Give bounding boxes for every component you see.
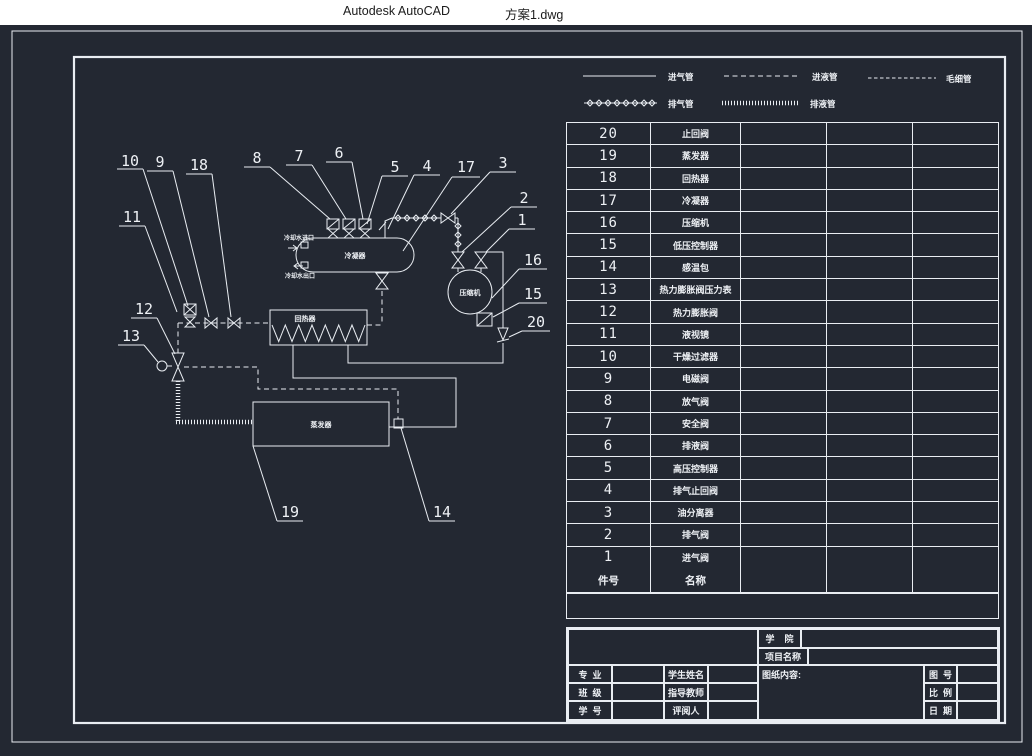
empty-cell [913,212,998,233]
table-row: 8 放气阀 [567,391,998,413]
callout-6: 6 [326,144,363,219]
part-name-cell: 冷凝器 [651,190,741,211]
drawing-content-cell: 图纸内容: [758,665,924,720]
part-name-cell: 蒸发器 [651,145,741,166]
empty-cell [913,190,998,211]
empty-cell [741,257,827,278]
evaporator-symbol: 蒸发器 [253,402,389,446]
callout-14: 14 [401,428,455,521]
empty-cell [827,123,913,144]
empty-cell [913,301,998,322]
legend-label: 毛细管 [946,74,972,85]
part-name-cell: 热力膨胀阀 [651,301,741,322]
drain-pipe [176,381,253,422]
svg-text:16: 16 [524,251,542,269]
empty-cell [741,480,827,501]
regenerator-label: 回热器 [295,314,317,323]
part-name-cell: 止回阀 [651,123,741,144]
svg-text:5: 5 [390,158,399,176]
svg-text:20: 20 [527,313,545,331]
table-row: 10 干燥过滤器 [567,346,998,368]
discharge-pipe [379,215,461,252]
advisor-value [708,683,758,701]
part-name-cell: 热力膨胀阀压力表 [651,279,741,300]
part-name-cell: 干燥过滤器 [651,346,741,367]
callout-20: 20 [509,313,550,337]
empty-cell [827,413,913,434]
empty-cell [741,234,827,255]
legend-item-drain-pipe: 排液管 [722,99,836,110]
header-empty-cell [913,568,998,592]
callout-18: 18 [186,156,231,317]
part-no-cell: 15 [567,234,651,255]
empty-cell [741,212,827,233]
expansion-valve-symbol [157,353,184,381]
header-part-no: 件号 [567,568,651,592]
table-row: 9 电磁阀 [567,368,998,390]
empty-cell [827,346,913,367]
svg-text:10: 10 [121,152,139,170]
part-no-cell: 11 [567,324,651,345]
empty-cell [741,413,827,434]
major-value [612,665,664,683]
part-no-cell: 4 [567,480,651,501]
empty-cell [827,212,913,233]
svg-text:4: 4 [422,157,431,175]
part-no-cell: 3 [567,502,651,523]
check-valve-symbol [497,328,509,342]
empty-cell [741,547,827,568]
part-name-cell: 电磁阀 [651,368,741,389]
part-name-cell: 高压控制器 [651,457,741,478]
empty-cell [741,435,827,456]
table-row: 17 冷凝器 [567,190,998,212]
empty-cell [741,190,827,211]
condenser-label: 冷凝器 [345,251,367,260]
callout-9: 9 [147,153,209,317]
student-name-value [708,665,758,683]
empty-cell [827,457,913,478]
empty-cell [827,480,913,501]
part-name-cell: 低压控制器 [651,234,741,255]
parts-table: 20 止回阀 19 蒸发器 18 回热器 17 冷凝器 16 压缩机 15 低压… [566,122,999,593]
svg-text:11: 11 [123,208,141,226]
date-value [957,701,998,720]
parts-rows: 20 止回阀 19 蒸发器 18 回热器 17 冷凝器 16 压缩机 15 低压… [567,123,998,568]
part-no-cell: 19 [567,145,651,166]
empty-cell [741,145,827,166]
evaporator-label: 蒸发器 [311,420,333,429]
discharge-valve [452,252,464,268]
part-no-cell: 17 [567,190,651,211]
svg-text:12: 12 [135,300,153,318]
svg-text:8: 8 [252,149,261,167]
scale-label: 比 例 [924,683,957,701]
callout-8: 8 [244,149,330,219]
schematic: 冷凝器 冷却水进口 冷却水出口 压缩机 [117,144,550,521]
svg-text:7: 7 [294,147,303,165]
low-pressure-controller-symbol [477,313,492,326]
date-label: 日 期 [924,701,957,720]
reviewer-value [708,701,758,720]
empty-cell [827,145,913,166]
table-row: 6 排液阀 [567,435,998,457]
part-no-cell: 10 [567,346,651,367]
table-row: 11 液视镜 [567,324,998,346]
empty-cell [741,391,827,412]
part-name-cell: 安全阀 [651,413,741,434]
part-no-cell: 1 [567,547,651,568]
app-title: Autodesk AutoCAD [343,4,450,18]
legend-item-discharge-pipe: 排气管 [584,99,694,110]
empty-cell [913,279,998,300]
empty-cell [741,168,827,189]
empty-cell [741,279,827,300]
part-name-cell: 放气阀 [651,391,741,412]
empty-cell [913,234,998,255]
drawing-no-label: 图 号 [924,665,957,683]
svg-text:3: 3 [498,154,507,172]
college-value [801,629,998,648]
part-name-cell: 排气止回阀 [651,480,741,501]
college-label: 学 院 [758,629,801,648]
empty-cell [913,168,998,189]
part-name-cell: 液视镜 [651,324,741,345]
part-no-cell: 13 [567,279,651,300]
part-name-cell: 感温包 [651,257,741,278]
major-label: 专 业 [568,665,612,683]
part-name-cell: 油分离器 [651,502,741,523]
scale-value [957,683,998,701]
title-block: 学 院 项目名称 专 业 学生姓名 班 级 指导教师 学 号 评阅人 图纸内容:… [566,627,1000,722]
empty-cell [827,547,913,568]
legend-label: 排气管 [668,99,694,110]
empty-cell [827,279,913,300]
student-name-label: 学生姓名 [664,665,708,683]
parts-table-header-row: 件号 名称 [567,568,998,592]
empty-cell [741,123,827,144]
inlet-arrow-icon [288,245,297,251]
empty-cell [913,391,998,412]
part-name-cell: 回热器 [651,168,741,189]
suction-valve [475,252,487,268]
project-name-label: 项目名称 [758,648,808,665]
header-empty-cell [827,568,913,592]
part-no-cell: 7 [567,413,651,434]
table-row: 18 回热器 [567,168,998,190]
table-row: 19 蒸发器 [567,145,998,167]
table-row: 13 热力膨胀阀压力表 [567,279,998,301]
regenerator-symbol: 回热器 [270,310,367,345]
empty-cell [913,257,998,278]
compressor-label: 压缩机 [460,288,481,297]
table-row: 5 高压控制器 [567,457,998,479]
callout-19: 19 [253,446,303,521]
part-no-cell: 6 [567,435,651,456]
empty-cell [741,457,827,478]
titlebar: Autodesk AutoCAD 方案1.dwg [0,0,1032,25]
empty-cell [741,324,827,345]
empty-cell [827,368,913,389]
svg-text:9: 9 [155,153,164,171]
svg-text:13: 13 [122,327,140,345]
student-no-value [612,701,664,720]
table-row: 12 热力膨胀阀 [567,301,998,323]
empty-cell [827,257,913,278]
part-no-cell: 12 [567,301,651,322]
table-row: 14 感温包 [567,257,998,279]
empty-cell [913,502,998,523]
empty-cell [827,190,913,211]
table-row: 4 排气止回阀 [567,480,998,502]
empty-cell [741,368,827,389]
svg-text:6: 6 [334,144,343,162]
empty-cell [913,368,998,389]
table-row: 1 进气阀 [567,547,998,568]
svg-text:2: 2 [519,189,528,207]
reviewer-label: 评阅人 [664,701,708,720]
empty-cell [827,324,913,345]
filter-drier-symbol [184,304,196,327]
callouts: 10 9 18 8 7 6 5 4 17 3 2 1 16 15 20 11 1… [117,144,550,521]
table-row: 16 压缩机 [567,212,998,234]
empty-cell [913,547,998,568]
callout-17: 17 [403,158,480,251]
pressure-gauge-symbol [157,361,167,371]
empty-cell [827,234,913,255]
callout-11: 11 [119,208,177,312]
part-no-cell: 18 [567,168,651,189]
drawing-no-value [957,665,998,683]
empty-cell [741,301,827,322]
document-title: 方案1.dwg [505,4,563,23]
callout-1: 1 [486,211,535,252]
empty-cell [827,524,913,545]
empty-cell [913,524,998,545]
table-footer-strip [566,593,999,619]
svg-text:14: 14 [433,503,451,521]
legend-item-capillary-pipe: 毛细管 [868,74,972,85]
legend-label: 进气管 [668,72,694,83]
empty-cell [913,480,998,501]
legend: 进气管 进液管 毛细管 排气管 排液管 [583,72,972,110]
empty-cell [827,168,913,189]
callout-5: 5 [367,158,408,224]
part-no-cell: 16 [567,212,651,233]
empty-cell [741,346,827,367]
svg-text:17: 17 [457,158,475,176]
part-no-cell: 2 [567,524,651,545]
empty-cell [913,413,998,434]
part-name-cell: 进气阀 [651,547,741,568]
empty-cell [913,123,998,144]
table-row: 3 油分离器 [567,502,998,524]
empty-cell [827,435,913,456]
condenser-top-valves [327,219,371,238]
class-value [612,683,664,701]
part-no-cell: 9 [567,368,651,389]
part-no-cell: 8 [567,391,651,412]
empty-cell [913,324,998,345]
cooling-water-outlet-label: 冷却水出口 [285,272,315,280]
condenser-drain-valve [376,273,388,289]
legend-label: 排液管 [810,99,836,110]
svg-text:18: 18 [190,156,208,174]
empty-cell [827,391,913,412]
legend-label: 进液管 [812,72,838,83]
compressor-symbol: 压缩机 [448,270,492,314]
part-name-cell: 排液阀 [651,435,741,456]
legend-item-suction-pipe: 进气管 [583,72,694,83]
empty-cell [913,435,998,456]
svg-text:15: 15 [524,285,542,303]
header-part-name: 名称 [651,568,741,592]
empty-cell [741,524,827,545]
table-row: 15 低压控制器 [567,234,998,256]
callout-13: 13 [118,327,158,362]
empty-cell [913,346,998,367]
part-no-cell: 5 [567,457,651,478]
table-row: 2 排气阀 [567,524,998,546]
part-name-cell: 压缩机 [651,212,741,233]
class-label: 班 级 [568,683,612,701]
student-no-label: 学 号 [568,701,612,720]
part-no-cell: 20 [567,123,651,144]
callout-10: 10 [117,152,188,306]
legend-item-liquid-pipe: 进液管 [724,72,838,83]
empty-cell [827,502,913,523]
part-name-cell: 排气阀 [651,524,741,545]
empty-cell [913,457,998,478]
table-row: 7 安全阀 [567,413,998,435]
part-no-cell: 14 [567,257,651,278]
svg-text:1: 1 [517,211,526,229]
project-name-value [808,648,998,665]
empty-cell [741,502,827,523]
empty-cell [913,145,998,166]
header-empty-cell [741,568,827,592]
title-block-empty-cell [568,629,758,665]
discharge-inlet-fitting [379,218,392,238]
condenser-symbol: 冷凝器 冷却水进口 冷却水出口 [284,234,414,289]
advisor-label: 指导教师 [664,683,708,701]
svg-text:19: 19 [281,503,299,521]
empty-cell [827,301,913,322]
table-row: 20 止回阀 [567,123,998,145]
discharge-line-valve [441,213,455,223]
cooling-water-inlet-label: 冷却水进口 [284,234,314,242]
